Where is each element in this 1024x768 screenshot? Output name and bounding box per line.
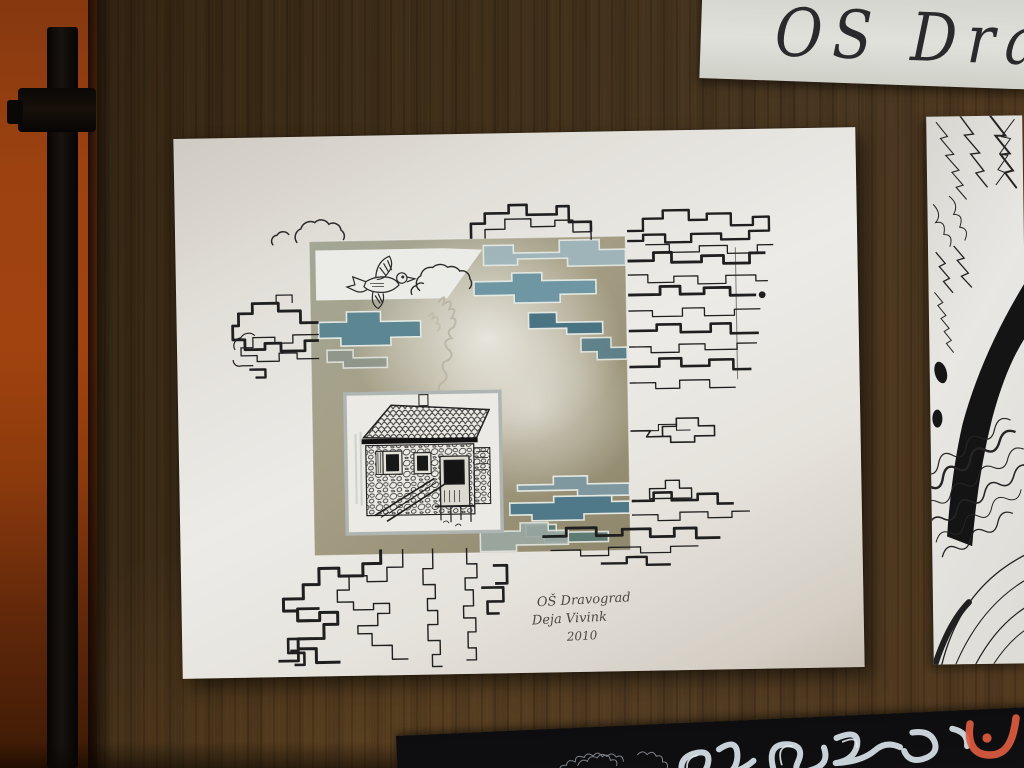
faint-scribble-cluster (531, 750, 669, 768)
sign-handwriting: OS Dra (699, 0, 1024, 90)
graffiti-paper (396, 706, 1024, 768)
pole-clamp-knob (7, 100, 23, 124)
window-left (376, 451, 402, 474)
window-right (414, 453, 431, 474)
signature: OŠ Dravograd Deja Vivink 2010 (529, 588, 632, 645)
ink-blob (932, 360, 949, 384)
signature-line3: 2010 (565, 628, 598, 644)
orange-noon-glyph-icon (958, 712, 1020, 766)
ink-maze-left (232, 294, 319, 377)
wavy-line-drawing (926, 115, 1024, 664)
thick-black-band (944, 283, 1024, 546)
door (440, 456, 470, 506)
wall-annex (474, 448, 491, 504)
graffiti-drawing (396, 706, 1024, 768)
signature-line2: Deja Vivink (530, 610, 607, 629)
sign-paper: OS Dra (699, 0, 1024, 90)
ink-maze-bottom-left (277, 547, 509, 669)
ink-maze-mid-right (630, 418, 714, 443)
main-artwork-drawing: OŠ Dravograd Deja Vivink 2010 (173, 127, 864, 679)
main-artwork-paper: OŠ Dravograd Deja Vivink 2010 (173, 127, 864, 679)
pole-clamp-bracket (18, 88, 96, 132)
ink-blob-2 (932, 410, 942, 428)
ink-maze-right (627, 247, 769, 389)
black-pole (47, 27, 78, 768)
eave-line (362, 440, 478, 442)
wavy-drawing-paper (926, 115, 1024, 664)
bottom-curves (934, 555, 1024, 664)
photo-of-artwork-wall: OS Dra (0, 0, 1024, 768)
silver-tag-strokes (680, 728, 968, 768)
house-drawing (345, 391, 502, 534)
signature-line1: OŠ Dravograd (536, 588, 631, 610)
